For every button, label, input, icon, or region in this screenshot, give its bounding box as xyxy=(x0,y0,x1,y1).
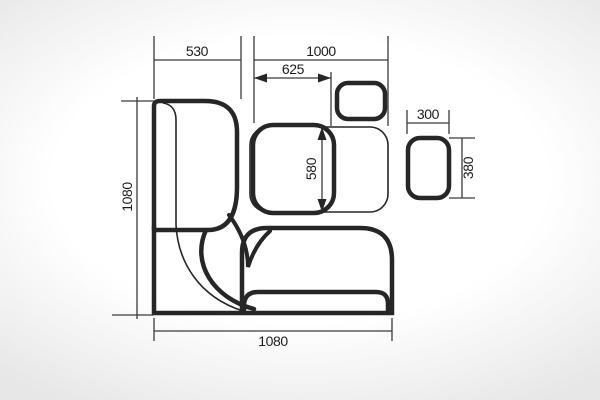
stool-right xyxy=(408,138,449,198)
dim-label-1000: 1000 xyxy=(306,43,336,59)
furniture-plan-drawing: 530 1000 625 580 1080 1080 300 380 xyxy=(0,0,600,400)
dim-label-625: 625 xyxy=(282,61,305,77)
dim-label-530: 530 xyxy=(186,43,209,59)
dim-label-380: 380 xyxy=(460,156,476,179)
drawing-canvas: 530 1000 625 580 1080 1080 300 380 xyxy=(0,0,600,400)
left-bench xyxy=(154,101,237,230)
dim-label-1080-bottom: 1080 xyxy=(258,333,288,349)
bottom-bench xyxy=(242,228,392,311)
stool-small xyxy=(337,83,385,119)
dim-label-300: 300 xyxy=(417,106,440,122)
dim-label-580: 580 xyxy=(303,157,319,180)
arrow-right-icon xyxy=(318,74,331,83)
arrow-left-icon xyxy=(254,74,267,83)
dim-label-1080-left: 1080 xyxy=(119,182,135,212)
